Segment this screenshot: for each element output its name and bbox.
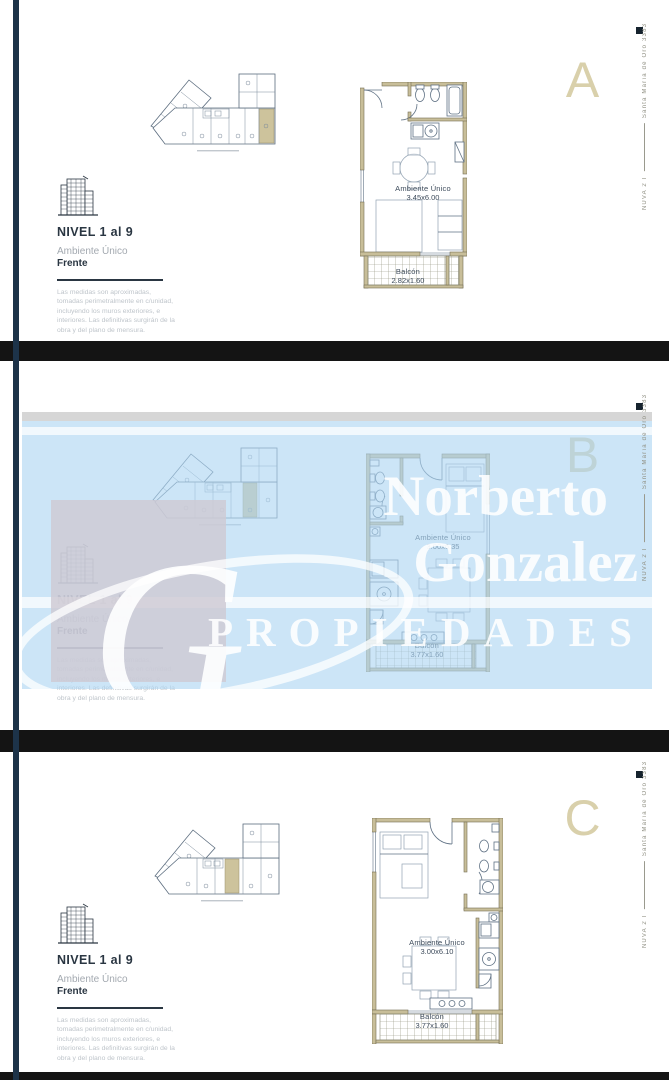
unit-letter-a: A	[553, 55, 613, 105]
project-name: NUVA 2 I	[642, 548, 648, 582]
orientation: Frente	[57, 986, 185, 997]
divider-line	[57, 1007, 163, 1009]
address-label: Santa María de Oro 3383	[642, 761, 648, 856]
building-icon	[57, 175, 99, 219]
address-label: Santa María de Oro 3383	[642, 394, 648, 489]
info-block-c: NIVEL 1 al 9 Ambiente Único Frente Las m…	[57, 903, 185, 1063]
room-label-b: Ambiente Único 3.00x6.35	[393, 533, 493, 551]
rail-divider	[645, 124, 646, 172]
panel-separator-1	[0, 341, 669, 361]
orientation: Frente	[57, 258, 185, 269]
disclaimer-text: Las medidas son aproximadas, tomadas per…	[57, 1016, 179, 1063]
panel-separator-3	[0, 1072, 669, 1080]
unit-letter-b: B	[553, 430, 613, 480]
unit-type: Ambiente Único	[57, 246, 185, 257]
left-navy-stripe	[13, 0, 19, 1080]
balcony-label-a: Balcón 2.82x1.60	[368, 267, 448, 285]
unit-letter-c: C	[553, 793, 613, 843]
rail-divider	[645, 495, 646, 543]
highlighted-unit	[225, 859, 239, 893]
floorplate-plan-c	[149, 816, 284, 908]
rail-divider	[645, 862, 646, 910]
watermark-gray-band	[22, 412, 652, 421]
level-title: NIVEL 1 al 9	[57, 953, 185, 967]
unit-type: Ambiente Único	[57, 974, 185, 985]
floorplate-plan-a	[145, 66, 280, 158]
floorplate-plan-b	[147, 440, 282, 532]
balcony-label-b: Balcón 3.77x1.60	[377, 641, 477, 659]
side-rail-c: NUVA 2 I Santa María de Oro 3383	[637, 780, 653, 930]
divider-line	[57, 647, 163, 649]
disclaimer-text: Las medidas son aproximadas, tomadas per…	[57, 656, 179, 703]
side-rail-b: NUVA 2 I Santa María de Oro 3383	[637, 413, 653, 563]
orientation: Frente	[57, 626, 185, 637]
unit-plan-b	[366, 448, 490, 672]
plan-sheet: A NUVA 2 I Santa María de Oro 3383	[0, 0, 669, 1080]
info-block-b: NIVEL 1 al 9 Ambiente Único Frente Las m…	[57, 543, 185, 703]
disclaimer-text: Las medidas son aproximadas, tomadas per…	[57, 288, 179, 335]
side-rail-a: NUVA 2 I Santa María de Oro 3383	[637, 42, 653, 192]
panel-separator-2	[0, 730, 669, 752]
balcony-label-c: Balcón 3.77x1.60	[382, 1012, 482, 1030]
room-label-c: Ambiente Único 3.00x6.10	[387, 938, 487, 956]
building-icon	[57, 903, 99, 947]
level-title: NIVEL 1 al 9	[57, 593, 185, 607]
divider-line	[57, 279, 163, 281]
project-name: NUVA 2 I	[642, 915, 648, 949]
building-icon	[57, 543, 99, 587]
info-block-a: NIVEL 1 al 9 Ambiente Único Frente Las m…	[57, 175, 185, 335]
unit-plan-c	[372, 818, 503, 1044]
unit-type: Ambiente Único	[57, 614, 185, 625]
address-label: Santa María de Oro 3383	[642, 23, 648, 118]
highlighted-unit	[259, 109, 274, 143]
level-title: NIVEL 1 al 9	[57, 225, 185, 239]
project-name: NUVA 2 I	[642, 177, 648, 211]
room-label-a: Ambiente Único 3.45x6.00	[380, 184, 466, 202]
